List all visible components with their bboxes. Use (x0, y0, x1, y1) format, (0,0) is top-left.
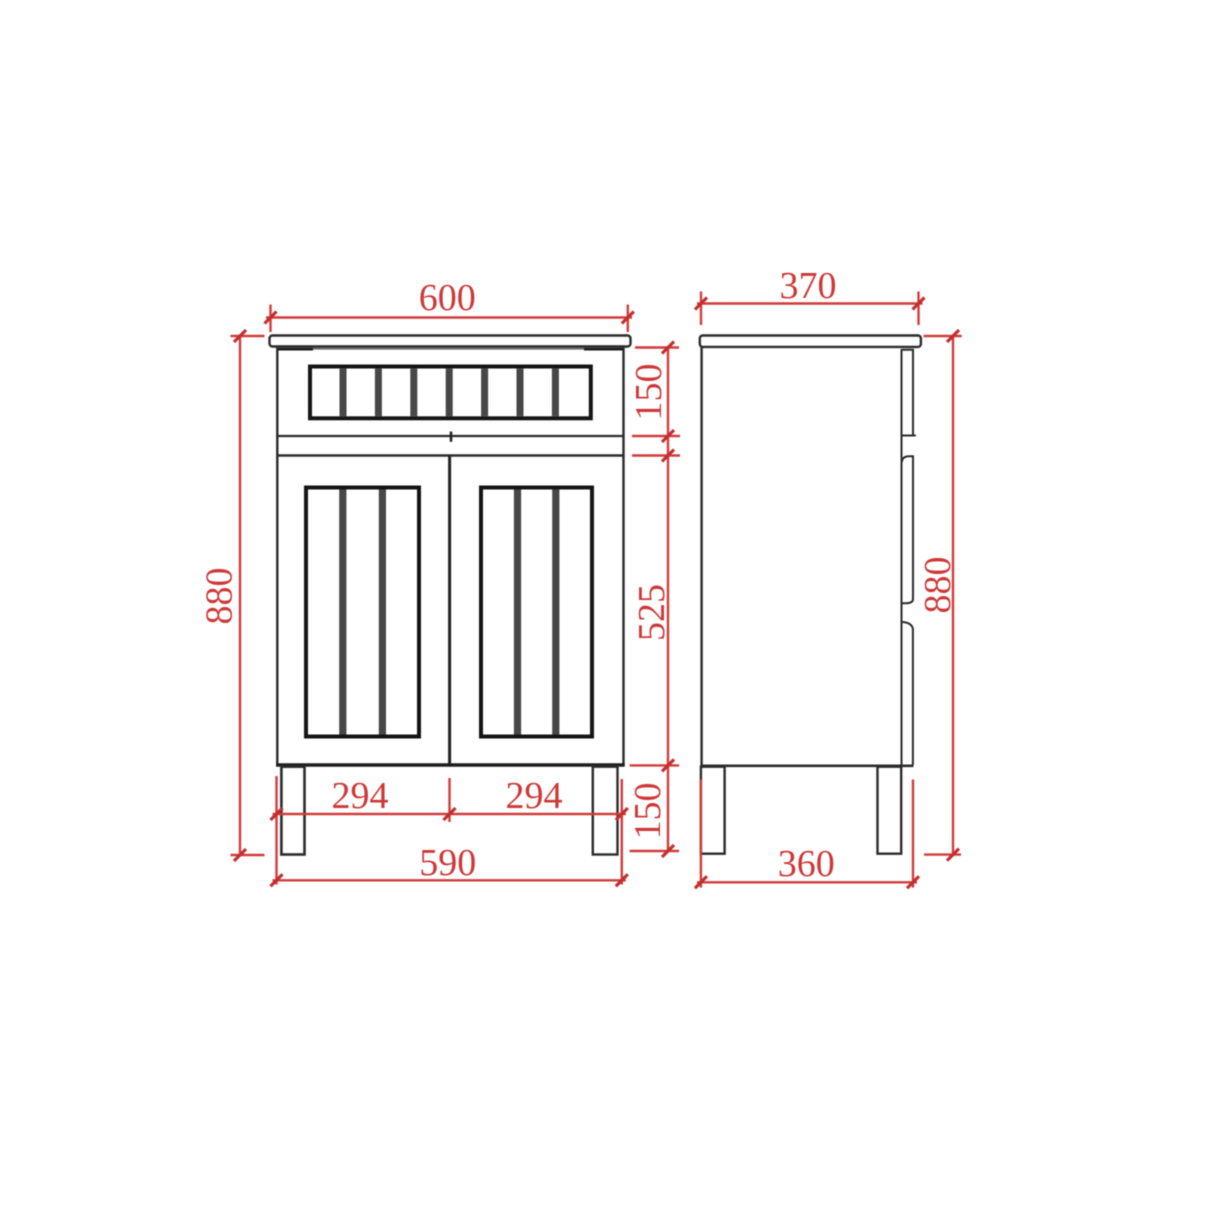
svg-text:590: 590 (419, 842, 476, 884)
svg-text:360: 360 (778, 843, 835, 885)
svg-text:600: 600 (419, 277, 476, 319)
svg-text:880: 880 (917, 557, 959, 614)
svg-text:150: 150 (627, 783, 669, 840)
svg-text:150: 150 (628, 364, 670, 421)
svg-text:880: 880 (199, 568, 241, 625)
svg-text:370: 370 (780, 265, 837, 307)
svg-text:525: 525 (631, 584, 673, 641)
svg-text:294: 294 (332, 775, 389, 817)
svg-text:294: 294 (506, 775, 563, 817)
